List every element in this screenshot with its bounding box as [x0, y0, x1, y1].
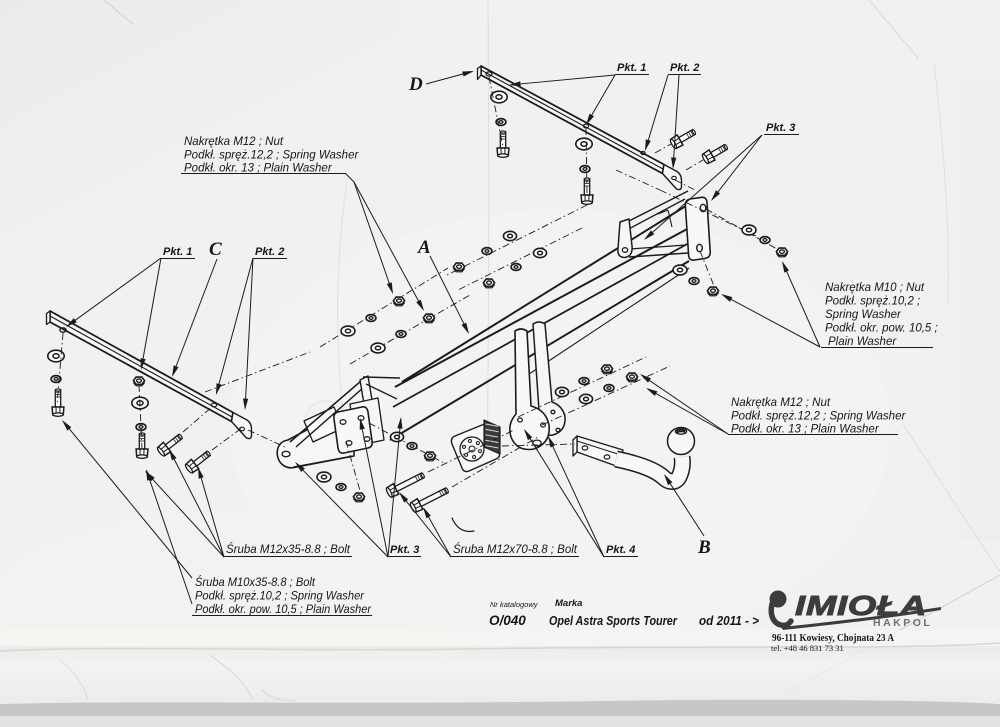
svg-text:Pkt. 4: Pkt. 4 [606, 544, 635, 556]
svg-text:Podkł. okr. pow. 10,5 ; Plain: Podkł. okr. pow. 10,5 ; Plain Washer [195, 602, 372, 616]
svg-text:Śruba M12x70-8.8 ; Bolt: Śruba M12x70-8.8 ; Bolt [453, 541, 578, 556]
svg-text:Podkł. okr. 13 ; Plain Washer: Podkł. okr. 13 ; Plain Washer [731, 424, 880, 436]
svg-text:HAKPOL: HAKPOL [873, 617, 932, 629]
svg-text:Nakrętka M12 ; Nut: Nakrętka M12 ; Nut [731, 397, 831, 409]
svg-text:Podkł. spręż.10,2 ; Spring Was: Podkł. spręż.10,2 ; Spring Washer [195, 589, 365, 603]
svg-text:Spring Washer: Spring Washer [825, 309, 902, 321]
svg-text:C: C [209, 239, 222, 260]
svg-text:A: A [417, 237, 431, 258]
svg-text:Podkł. spręż.12,2 ; Spring Was: Podkł. spręż.12,2 ; Spring Washer [184, 150, 359, 162]
svg-text:Śruba M12x35-8.8 ; Bolt: Śruba M12x35-8.8 ; Bolt [226, 541, 351, 556]
svg-text:tel. +48 46 831 73 31: tel. +48 46 831 73 31 [771, 643, 844, 653]
svg-text:Nakrętka M10 ; Nut: Nakrętka M10 ; Nut [825, 282, 925, 294]
svg-text:Podkł. okr. pow. 10,5 ;: Podkł. okr. pow. 10,5 ; [825, 323, 938, 335]
svg-text:Pkt. 2: Pkt. 2 [670, 62, 699, 74]
svg-text:Pkt. 3: Pkt. 3 [766, 122, 795, 134]
svg-text:Podkł. spręż.12,2 ; Spring Was: Podkł. spręż.12,2 ; Spring Washer [731, 411, 906, 423]
svg-text:Opel Astra Sports Tourer: Opel Astra Sports Tourer [549, 613, 678, 628]
svg-text:Podkł. okr. 13 ; Plain Washer: Podkł. okr. 13 ; Plain Washer [184, 163, 333, 175]
svg-text:O/040: O/040 [489, 613, 526, 628]
svg-text:Pkt. 3: Pkt. 3 [390, 544, 419, 556]
svg-text:Pkt. 2: Pkt. 2 [255, 246, 284, 258]
svg-text:B: B [697, 537, 711, 558]
svg-text:Plain Washer: Plain Washer [828, 336, 897, 348]
svg-text:Pkt. 1: Pkt. 1 [617, 62, 646, 74]
svg-text:Pkt. 1: Pkt. 1 [163, 246, 192, 258]
svg-text:D: D [408, 74, 423, 95]
svg-text:Nakrętka M12 ; Nut: Nakrętka M12 ; Nut [184, 136, 284, 148]
svg-text:od 2011 - >: od 2011 - > [699, 613, 759, 628]
svg-text:Marka: Marka [555, 598, 582, 609]
svg-text:Podkł. spręż.10,2 ;: Podkł. spręż.10,2 ; [825, 296, 920, 308]
svg-text:Nr katalogowy: Nr katalogowy [490, 600, 539, 609]
svg-text:Śruba M10x35-8.8 ; Bolt: Śruba M10x35-8.8 ; Bolt [195, 574, 316, 589]
